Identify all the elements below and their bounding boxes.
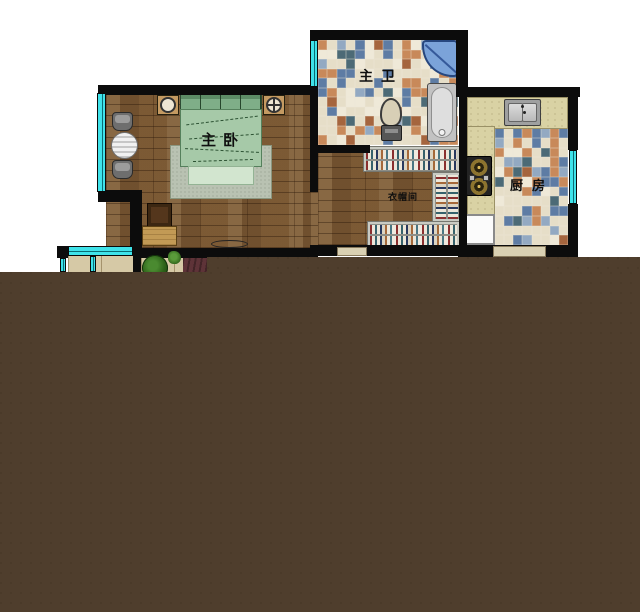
mosaic-tile [513, 206, 522, 216]
bathtub-drain [439, 129, 446, 136]
mosaic-tile [532, 196, 541, 206]
hanging-clothes [366, 160, 457, 171]
mosaic-tile [532, 148, 541, 158]
mosaic-tile [495, 138, 504, 148]
mosaic-tile [337, 107, 346, 117]
mosaic-tile [559, 128, 568, 138]
mosaic-tile [522, 128, 531, 138]
stacked-clothes [447, 175, 459, 219]
mosaic-tile [522, 148, 531, 158]
mosaic-tile [355, 107, 364, 117]
mosaic-tile [513, 216, 522, 226]
mosaic-tile [504, 235, 513, 245]
mosaic-tile [337, 59, 346, 69]
mosaic-tile [513, 148, 522, 158]
mosaic-tile [318, 78, 327, 88]
mosaic-tile [318, 88, 327, 98]
bed-headboard [180, 93, 262, 110]
mosaic-tile [550, 216, 559, 226]
stove-knob [469, 175, 475, 181]
kitchen-window [569, 150, 577, 204]
balcony-window [68, 246, 133, 256]
mosaic-tile [504, 196, 513, 206]
mosaic-tile [504, 148, 513, 158]
mosaic-tile [318, 40, 327, 50]
toilet [380, 98, 402, 127]
mosaic-tile [522, 216, 531, 226]
mosaic-tile [393, 40, 402, 50]
door-threshold [337, 247, 367, 256]
mosaic-tile [541, 157, 550, 167]
mosaic-tile [337, 97, 346, 107]
mosaic-tile [411, 88, 420, 98]
mosaic-tile [318, 107, 327, 117]
mosaic-tile [411, 107, 420, 117]
wall [98, 85, 318, 95]
mosaic-tile [504, 138, 513, 148]
mosaic-tile [355, 40, 364, 50]
mosaic-tile [318, 97, 327, 107]
mosaic-tile [495, 216, 504, 226]
mosaic-tile [411, 59, 420, 69]
mosaic-tile [355, 126, 364, 136]
mosaic-tile [504, 206, 513, 216]
wall [456, 87, 580, 97]
doorway-floor-patch [310, 192, 318, 248]
mosaic-tile [421, 69, 430, 79]
lamp-icon [160, 97, 176, 113]
mosaic-tile [337, 126, 346, 136]
mosaic-tile [327, 97, 336, 107]
mosaic-tile [513, 226, 522, 236]
mosaic-tile [495, 235, 504, 245]
faucet-icon [521, 105, 524, 108]
mosaic-tile [411, 40, 420, 50]
mosaic-tile [559, 138, 568, 148]
mosaic-tile [541, 206, 550, 216]
stove-knob [483, 175, 489, 181]
bathroom-window [310, 40, 318, 87]
mosaic-tile [532, 235, 541, 245]
mosaic-tile [541, 148, 550, 158]
mosaic-tile [327, 50, 336, 60]
mosaic-tile [504, 157, 513, 167]
mosaic-tile [318, 116, 327, 126]
mosaic-tile [327, 126, 336, 136]
bed-footboard [188, 166, 254, 185]
mosaic-tile [337, 50, 346, 60]
mosaic-tile [411, 126, 420, 136]
desk-chair [147, 203, 172, 227]
mosaic-tile [522, 157, 531, 167]
mosaic-tile [411, 116, 420, 126]
closet-label: 衣帽间 [383, 190, 423, 203]
mosaic-tile [402, 50, 411, 60]
mosaic-tile [346, 135, 355, 145]
mosaic-tile [541, 138, 550, 148]
wall [133, 246, 141, 272]
mosaic-tile [532, 216, 541, 226]
mosaic-tile [541, 226, 550, 236]
mosaic-tile [513, 138, 522, 148]
mosaic-tile [337, 69, 346, 79]
wall [568, 87, 578, 150]
mosaic-tile [393, 88, 402, 98]
mosaic-tile [402, 107, 411, 117]
mosaic-tile [365, 50, 374, 60]
kitchen-sink [504, 99, 541, 126]
mosaic-tile [550, 138, 559, 148]
balcony-window-mid [90, 256, 96, 272]
mosaic-tile [374, 50, 383, 60]
mosaic-tile [337, 135, 346, 145]
mosaic-tile [337, 40, 346, 50]
nightstand-left [157, 95, 179, 115]
mosaic-tile [327, 78, 336, 88]
mosaic-tile [374, 88, 383, 98]
mosaic-tile [327, 88, 336, 98]
hanging-clothes [370, 224, 457, 235]
mosaic-tile [402, 116, 411, 126]
mosaic-tile [411, 50, 420, 60]
door-threshold [493, 246, 546, 257]
mosaic-tile [383, 88, 392, 98]
mosaic-tile [346, 107, 355, 117]
mosaic-tile [365, 107, 374, 117]
lamp-symbol-icon [266, 97, 282, 113]
mosaic-tile [365, 135, 374, 145]
mosaic-tile [337, 88, 346, 98]
mosaic-tile [411, 135, 420, 145]
mosaic-tile [532, 138, 541, 148]
wall [57, 246, 68, 258]
mosaic-tile [402, 97, 411, 107]
mosaic-tile [532, 226, 541, 236]
gas-stove [466, 156, 492, 196]
mosaic-tile [346, 116, 355, 126]
mosaic-tile [318, 135, 327, 145]
mosaic-tile [495, 148, 504, 158]
mosaic-tile [532, 128, 541, 138]
wardrobe-shelf-top [363, 146, 460, 172]
mosaic-tile [365, 116, 374, 126]
mosaic-tile [541, 216, 550, 226]
mosaic-tile [522, 138, 531, 148]
mosaic-tile [318, 50, 327, 60]
mosaic-tile [355, 97, 364, 107]
mosaic-tile [532, 157, 541, 167]
mosaic-tile [541, 235, 550, 245]
wall [310, 87, 318, 192]
mosaic-tile [365, 88, 374, 98]
master-bathroom-label: 主卫 [350, 66, 412, 86]
kitchen-label: 厨房 [501, 175, 563, 194]
mosaic-tile [550, 128, 559, 138]
mosaic-tile [383, 50, 392, 60]
mosaic-tile [495, 196, 504, 206]
wall [459, 97, 467, 245]
mosaic-tile [346, 40, 355, 50]
burner-icon [471, 159, 488, 176]
mosaic-tile [327, 40, 336, 50]
mosaic-tile [355, 135, 364, 145]
nightstand-right [263, 95, 285, 115]
mosaic-tile [513, 128, 522, 138]
mosaic-tile [346, 97, 355, 107]
mosaic-tile [504, 128, 513, 138]
bathtub [427, 83, 457, 142]
mosaic-tile [355, 50, 364, 60]
mosaic-tile [346, 50, 355, 60]
mosaic-tile [522, 226, 531, 236]
mosaic-tile [318, 126, 327, 136]
mosaic-tile [522, 206, 531, 216]
mosaic-tile [327, 69, 336, 79]
mosaic-tile [402, 40, 411, 50]
mosaic-tile [550, 235, 559, 245]
mosaic-tile [559, 216, 568, 226]
mosaic-tile [513, 196, 522, 206]
mosaic-tile [355, 116, 364, 126]
wall [310, 30, 462, 40]
mosaic-tile [550, 226, 559, 236]
mosaic-tile [327, 116, 336, 126]
wall [130, 202, 142, 248]
mosaic-tile [559, 196, 568, 206]
mosaic-tile [374, 40, 383, 50]
mosaic-tile [383, 40, 392, 50]
hanging-clothes [366, 149, 457, 160]
mosaic-tile [327, 107, 336, 117]
mosaic-tile [318, 59, 327, 69]
master-bedroom-label: 主卧 [194, 129, 252, 150]
mosaic-tile [522, 235, 531, 245]
mosaic-tile [550, 148, 559, 158]
mosaic-tile [550, 206, 559, 216]
mosaic-tile [411, 78, 420, 88]
mosaic-tile [337, 78, 346, 88]
faucet-dot [523, 111, 526, 114]
desk [142, 226, 177, 246]
mosaic-tile [411, 69, 420, 79]
mosaic-tile [346, 126, 355, 136]
mosaic-tile [559, 157, 568, 167]
covered-area-main [0, 272, 640, 612]
mosaic-tile [495, 206, 504, 216]
mosaic-tile [495, 128, 504, 138]
mosaic-tile [327, 135, 336, 145]
mosaic-tile [337, 116, 346, 126]
mosaic-tile [393, 50, 402, 60]
mosaic-tile [346, 88, 355, 98]
mosaic-tile [559, 235, 568, 245]
stacked-clothes [435, 175, 447, 219]
mosaic-tile [504, 216, 513, 226]
mosaic-tile [318, 69, 327, 79]
tv-stand [211, 240, 248, 248]
mosaic-tile [541, 196, 550, 206]
wall [310, 145, 370, 153]
covered-area-strip [207, 257, 640, 272]
wall [310, 245, 460, 256]
mosaic-tile [513, 235, 522, 245]
mosaic-tile [532, 206, 541, 216]
mosaic-tile [513, 157, 522, 167]
entry-wood-strip [183, 256, 207, 272]
floorplan-canvas: 主卧 主卫 厨房 衣帽间 [0, 0, 640, 612]
round-table [111, 132, 138, 159]
wall [568, 204, 578, 245]
mosaic-tile [495, 226, 504, 236]
mosaic-tile [522, 196, 531, 206]
balcony-window-side [60, 258, 66, 272]
mosaic-tile [550, 196, 559, 206]
mosaic-tile [550, 157, 559, 167]
refrigerator [464, 214, 495, 245]
mosaic-tile [355, 88, 364, 98]
bedroom-window [97, 93, 106, 192]
wardrobe-shelf-bottom [367, 221, 460, 246]
mosaic-tile [402, 135, 411, 145]
mosaic-tile [365, 97, 374, 107]
mosaic-tile [495, 157, 504, 167]
mosaic-tile [559, 206, 568, 216]
plant-small [168, 251, 181, 264]
chair-bottom [112, 160, 133, 179]
mosaic-tile [327, 59, 336, 69]
wardrobe-shelf-right [432, 172, 460, 222]
mosaic-tile [541, 128, 550, 138]
mosaic-tile [365, 40, 374, 50]
mosaic-tile [365, 126, 374, 136]
mosaic-tile [559, 148, 568, 158]
balcony-tiles [68, 256, 133, 272]
mosaic-tile [402, 126, 411, 136]
chair-top [112, 112, 133, 131]
mosaic-tile [559, 226, 568, 236]
mosaic-tile [402, 88, 411, 98]
mosaic-tile [504, 226, 513, 236]
toilet-tank [381, 125, 402, 141]
mosaic-tile [411, 97, 420, 107]
